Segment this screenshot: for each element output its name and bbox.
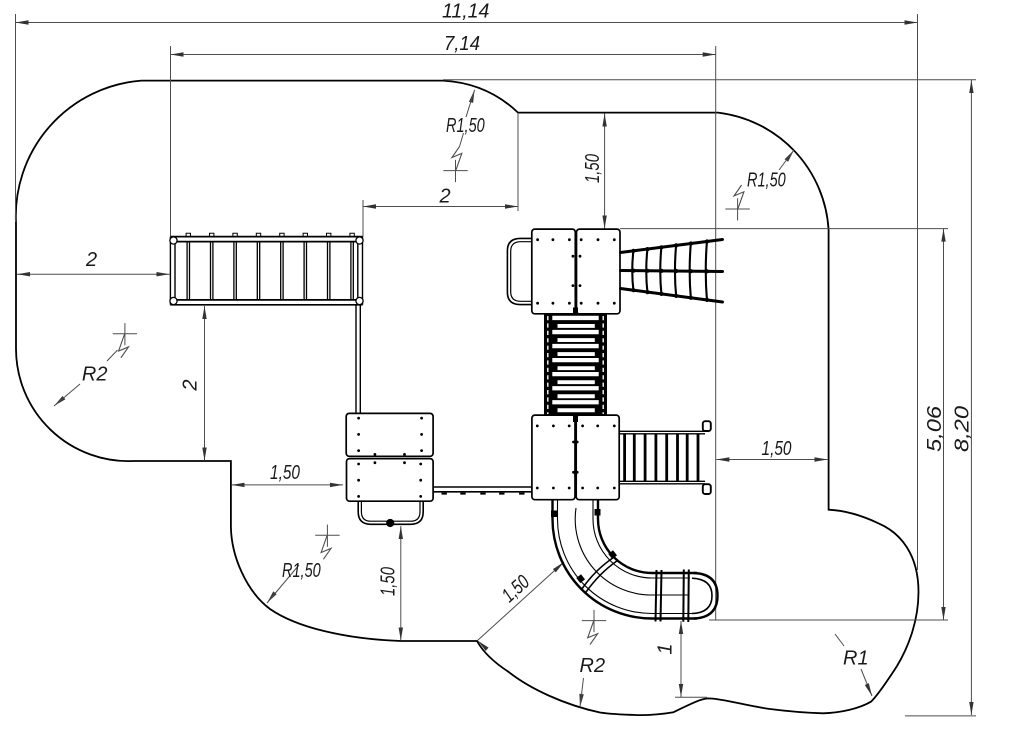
svg-text:R1: R1 bbox=[843, 648, 869, 670]
svg-text:11,14: 11,14 bbox=[442, 1, 490, 23]
svg-text:1,50: 1,50 bbox=[762, 438, 792, 460]
svg-text:R1,50: R1,50 bbox=[446, 115, 485, 137]
svg-text:R2: R2 bbox=[82, 364, 108, 386]
svg-text:1,50: 1,50 bbox=[270, 462, 300, 484]
svg-text:R1,50: R1,50 bbox=[282, 560, 321, 582]
svg-text:1,50: 1,50 bbox=[582, 154, 604, 183]
svg-text:2: 2 bbox=[438, 186, 450, 208]
svg-text:R2: R2 bbox=[580, 655, 606, 677]
svg-text:2: 2 bbox=[180, 379, 202, 391]
svg-text:5,06: 5,06 bbox=[924, 405, 946, 452]
svg-text:1,50: 1,50 bbox=[378, 567, 400, 596]
svg-text:1: 1 bbox=[655, 643, 677, 654]
svg-text:R1,50: R1,50 bbox=[747, 170, 786, 192]
svg-text:7,14: 7,14 bbox=[444, 33, 480, 55]
svg-text:8,20: 8,20 bbox=[952, 406, 974, 452]
svg-text:2: 2 bbox=[85, 249, 97, 271]
